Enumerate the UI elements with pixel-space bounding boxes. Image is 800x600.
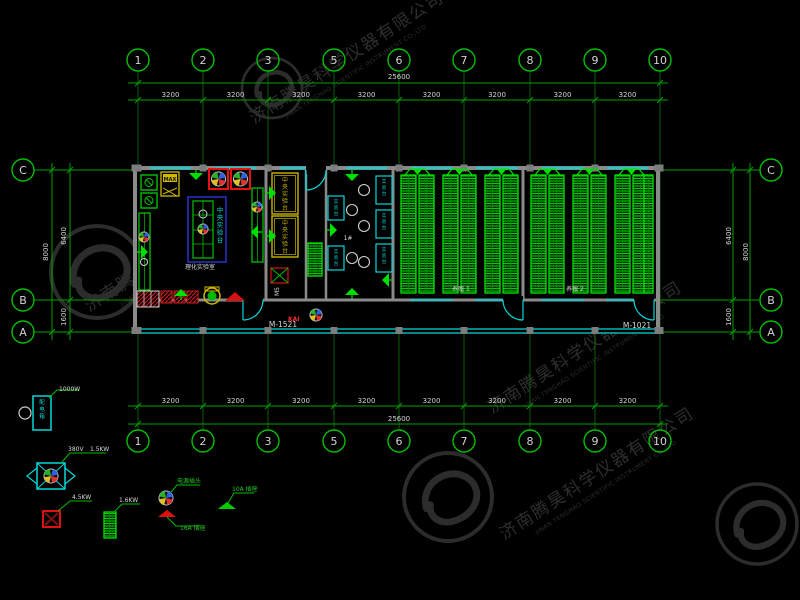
axis-number-top: 6 — [396, 54, 403, 67]
axis-letter-right: B — [767, 294, 775, 307]
column-marker — [200, 327, 207, 334]
legend-socket16-icon — [158, 510, 176, 517]
floor-plan-drawing: 济南腾昊科学仪器有限公司 JINAN TENGHAO SCIENTIFIC IN… — [0, 0, 800, 600]
legend-label-socket10: 10A 插座 — [232, 485, 258, 493]
plug-icon — [310, 309, 322, 321]
room-label-lab: 理化实验室 — [185, 263, 215, 271]
bay-dim-top: 3200 — [358, 91, 376, 99]
legend-ac-fan-icon — [44, 469, 58, 483]
equipment-bench-label: 实验台 — [334, 248, 339, 267]
heater-unit — [187, 291, 198, 303]
axis-letter-right: C — [767, 164, 775, 177]
bay-dim-bottom: 3200 — [488, 397, 506, 405]
svg-text:JINAN TENGHAO SCIENTIFIC INSTR: JINAN TENGHAO SCIENTIFIC INSTRUMENT CO.,… — [284, 23, 429, 120]
legend-label-4-5kw: 4.5KW — [72, 494, 91, 501]
column-marker — [396, 327, 403, 334]
axis-number-bottom: 7 — [461, 435, 468, 448]
axis-letter-left: A — [19, 326, 27, 339]
column-marker — [331, 165, 338, 172]
axis-number-top: 9 — [592, 54, 599, 67]
cad-viewport: 济南腾昊科学仪器有限公司 JINAN TENGHAO SCIENTIFIC IN… — [0, 0, 800, 600]
legend-label-1-6kw: 1.6KW — [119, 497, 138, 504]
axis-number-bottom: 10 — [653, 435, 667, 448]
column-marker — [592, 327, 599, 334]
dim-total-top: 25600 — [388, 73, 410, 81]
axis-letter-left: C — [19, 164, 27, 177]
axis-number-top: 5 — [331, 54, 338, 67]
bay-dim-top: 3200 — [488, 91, 506, 99]
axis-number-top: 10 — [653, 54, 667, 67]
bay-dim-top: 3200 — [554, 91, 572, 99]
bay-dim-bottom: 3200 — [227, 397, 245, 405]
equipment-bench-label: 实验台 — [334, 198, 339, 217]
central-bench-label: 中央实验台 — [282, 176, 288, 212]
axis-number-bottom: 6 — [396, 435, 403, 448]
bay-dim-top: 3200 — [162, 91, 180, 99]
legend-plug-icon — [159, 491, 173, 505]
axis-number-top: 7 — [461, 54, 468, 67]
watermark-logo — [404, 453, 492, 541]
axis-number-bottom: 9 — [592, 435, 599, 448]
bay-dim-bottom: 3200 — [619, 397, 637, 405]
svg-text:济南腾昊科学仪器有限公司: 济南腾昊科学仪器有限公司 — [246, 0, 448, 128]
column-marker — [331, 327, 338, 334]
legend-label-socket16: 16A 插座 — [180, 524, 206, 532]
door-tag: M5 — [274, 287, 281, 296]
central-bench-label: 中央实验台 — [282, 219, 288, 255]
axis-number-bottom: 2 — [200, 435, 207, 448]
column-marker — [396, 165, 403, 172]
column-marker — [200, 165, 207, 172]
legend-label-plug: 电源插头 — [177, 477, 201, 485]
legend: 配电箱 — [19, 390, 254, 538]
cabinet-label: MAX — [164, 177, 177, 183]
room-label-rear2: 养殖 2 — [566, 285, 584, 293]
axis-number-bottom: 5 — [331, 435, 338, 448]
column-marker — [461, 327, 468, 334]
bench-fan-icon — [252, 202, 262, 212]
axis-letter-right: A — [767, 326, 775, 339]
bench-fan-icon — [139, 232, 149, 242]
column-marker — [132, 327, 139, 334]
bay-dim-top: 3200 — [227, 91, 245, 99]
axis-number-top: 3 — [265, 54, 272, 67]
column-marker — [527, 165, 534, 172]
equipment-bench-label: 实验台 — [382, 178, 387, 197]
central-bench-label: 中央实验台 — [217, 205, 224, 244]
control-box-label: 配电箱 — [39, 399, 45, 420]
axis-number-top: 8 — [527, 54, 534, 67]
dim-side-lower-right: 1600 — [725, 308, 733, 326]
room-label-mid: 1# — [344, 235, 353, 242]
bench-fan-icon — [198, 224, 208, 234]
column-marker — [527, 327, 534, 334]
bay-dim-bottom: 3200 — [162, 397, 180, 405]
dim-total-bottom: 25600 — [388, 415, 410, 423]
axis-number-bottom: 3 — [265, 435, 272, 448]
heater-unit — [161, 291, 172, 303]
exhaust-fan-icon — [212, 172, 226, 186]
legend-label-1-5kw: 1.5KW — [90, 446, 109, 453]
axis-letter-left: B — [19, 294, 27, 307]
dim-side-upper-left: 6400 — [60, 227, 68, 245]
bay-dim-top: 3200 — [423, 91, 441, 99]
legend-label-380v: 380V — [68, 446, 84, 453]
axis-number-top: 1 — [135, 54, 142, 67]
equipment-bench-label: 实验台 — [382, 246, 387, 265]
legend-label-1000w: 1000W — [59, 386, 80, 393]
dim-side-total-right: 8000 — [742, 243, 750, 261]
watermark-logo — [717, 484, 797, 564]
exhaust-fan-icon — [234, 172, 248, 186]
svg-text:JINAN TENGHAO SCIENTIFIC INSTR: JINAN TENGHAO SCIENTIFIC INSTRUMENT CO.,… — [534, 439, 679, 536]
sink-unit — [137, 291, 159, 307]
column-marker — [655, 165, 662, 172]
axis-number-bottom: 8 — [527, 435, 534, 448]
bay-dim-top: 3200 — [292, 91, 310, 99]
bay-dim-bottom: 3200 — [358, 397, 376, 405]
axis-number-top: 2 — [200, 54, 207, 67]
dim-side-total-left: 8000 — [42, 243, 50, 261]
bay-dim-bottom: 3200 — [292, 397, 310, 405]
equipment-bench-label: 实验台 — [382, 212, 387, 231]
red-equipment-tag: KAI — [288, 316, 300, 323]
legend-socket10-icon — [218, 502, 236, 509]
bay-dim-bottom: 3200 — [423, 397, 441, 405]
door-label-right: M-1021 — [623, 321, 651, 330]
watermark-text: 济南腾昊科学仪器有限公司 JINAN TENGHAO SCIENTIFIC IN… — [496, 403, 704, 552]
column-marker — [655, 327, 662, 334]
dim-side-upper-right: 6400 — [725, 227, 733, 245]
bay-dim-top: 3200 — [619, 91, 637, 99]
room-label-rear1: 养殖 1 — [452, 285, 470, 293]
column-marker — [132, 165, 139, 172]
bay-dim-bottom: 3200 — [554, 397, 572, 405]
dim-side-lower-left: 1600 — [60, 308, 68, 326]
axis-number-bottom: 1 — [135, 435, 142, 448]
